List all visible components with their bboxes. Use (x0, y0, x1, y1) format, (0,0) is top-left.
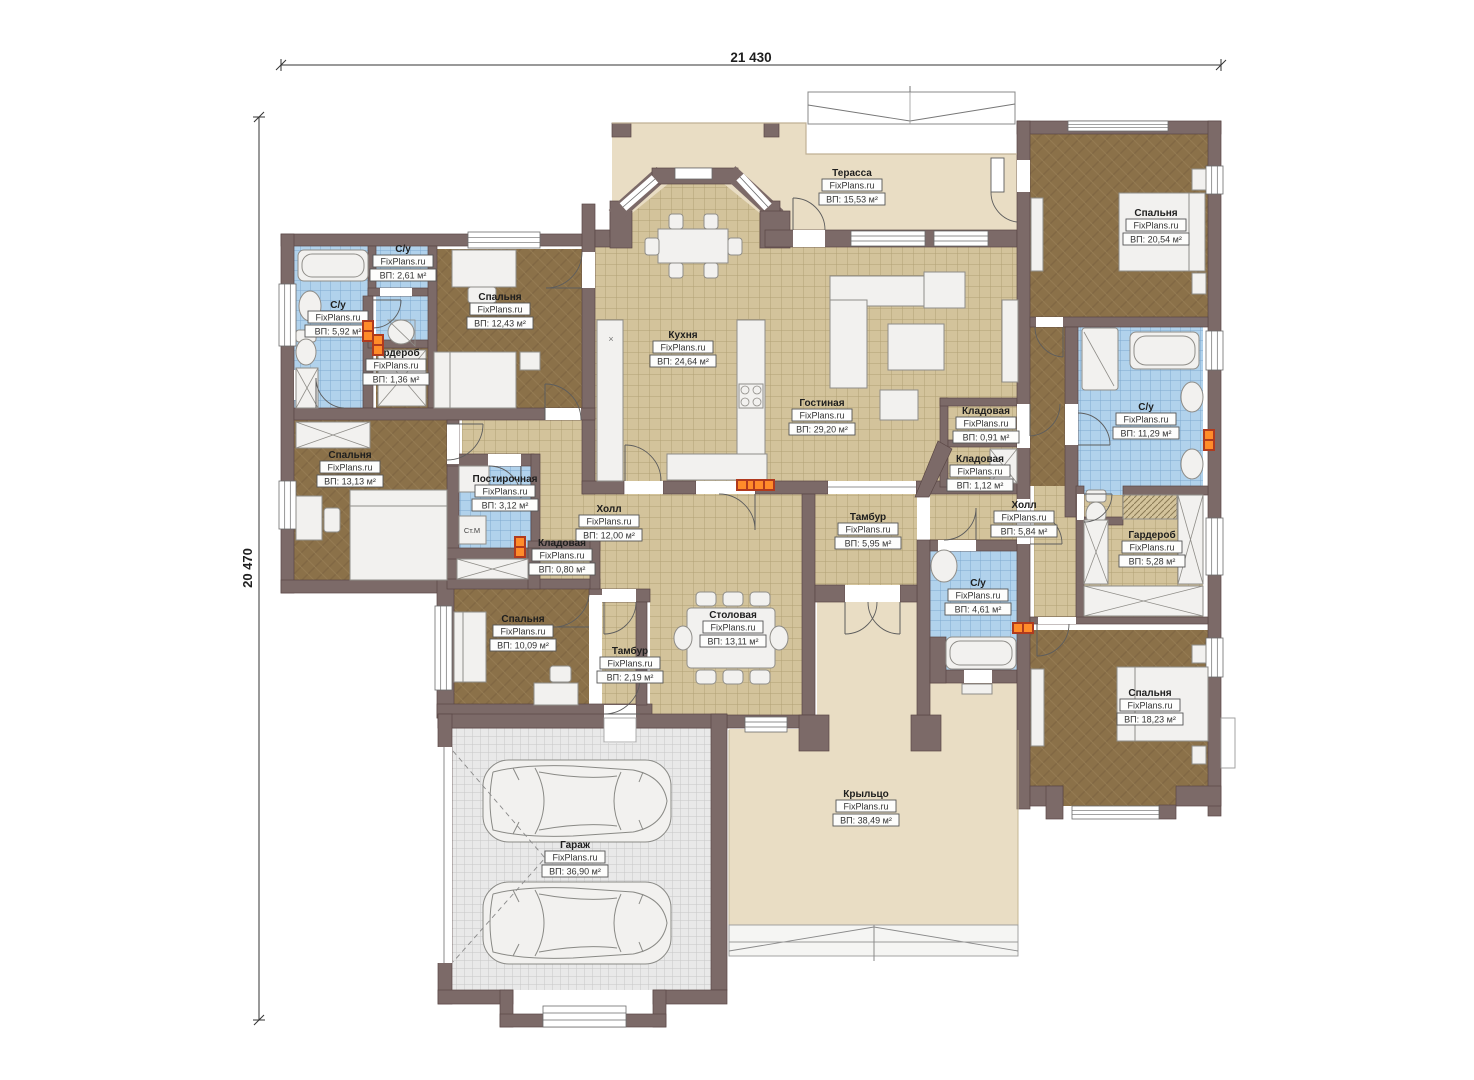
svg-text:ВП: 2,19 м²: ВП: 2,19 м² (607, 673, 654, 683)
svg-text:FixPlans.ru: FixPlans.ru (829, 181, 874, 191)
svg-text:FixPlans.ru: FixPlans.ru (607, 659, 652, 669)
svg-text:21 430: 21 430 (730, 50, 771, 65)
svg-text:Кладовая: Кладовая (962, 406, 1010, 417)
svg-text:Терасса: Терасса (832, 168, 872, 179)
svg-text:ВП: 36,90 м²: ВП: 36,90 м² (549, 867, 601, 877)
svg-text:FixPlans.ru: FixPlans.ru (373, 361, 418, 371)
svg-text:Спальня: Спальня (478, 292, 521, 303)
svg-text:Тамбур: Тамбур (850, 511, 886, 523)
svg-text:ВП: 5,95 м²: ВП: 5,95 м² (845, 539, 892, 549)
svg-text:ВП: 1,12 м²: ВП: 1,12 м² (957, 481, 1004, 491)
svg-text:FixPlans.ru: FixPlans.ru (957, 467, 1002, 477)
svg-text:FixPlans.ru: FixPlans.ru (799, 411, 844, 421)
svg-text:ВП: 5,28 м²: ВП: 5,28 м² (1129, 557, 1176, 567)
svg-text:Гараж: Гараж (560, 840, 591, 851)
svg-text:ВП: 29,20 м²: ВП: 29,20 м² (796, 425, 848, 435)
svg-text:ВП: 12,00 м²: ВП: 12,00 м² (583, 531, 635, 541)
svg-text:FixPlans.ru: FixPlans.ru (1123, 415, 1168, 425)
svg-text:FixPlans.ru: FixPlans.ru (1129, 543, 1174, 553)
svg-text:ВП: 0,80 м²: ВП: 0,80 м² (539, 565, 586, 575)
svg-text:Столовая: Столовая (709, 610, 757, 621)
svg-text:Спальня: Спальня (1134, 208, 1177, 219)
svg-text:FixPlans.ru: FixPlans.ru (315, 313, 360, 323)
svg-text:ВП: 20,54 м²: ВП: 20,54 м² (1130, 235, 1182, 245)
svg-text:20 470: 20 470 (240, 548, 255, 588)
svg-text:Холл: Холл (596, 504, 621, 515)
svg-text:FixPlans.ru: FixPlans.ru (327, 463, 372, 473)
svg-text:Кладовая: Кладовая (956, 454, 1004, 465)
svg-text:ВП: 3,12 м²: ВП: 3,12 м² (482, 501, 529, 511)
svg-text:FixPlans.ru: FixPlans.ru (586, 517, 631, 527)
svg-text:С/у: С/у (395, 244, 411, 255)
svg-text:С/у: С/у (330, 300, 346, 311)
svg-text:Ст.М: Ст.М (464, 526, 480, 535)
svg-text:Кладовая: Кладовая (538, 538, 586, 549)
svg-text:FixPlans.ru: FixPlans.ru (482, 487, 527, 497)
svg-text:FixPlans.ru: FixPlans.ru (1133, 221, 1178, 231)
svg-text:FixPlans.ru: FixPlans.ru (963, 419, 1008, 429)
svg-text:Гардероб: Гардероб (1128, 529, 1175, 541)
svg-text:Спальня: Спальня (1128, 688, 1171, 699)
svg-text:FixPlans.ru: FixPlans.ru (845, 525, 890, 535)
svg-text:Холл: Холл (1011, 500, 1036, 511)
svg-text:ВП: 5,92 м²: ВП: 5,92 м² (315, 327, 362, 337)
svg-text:ВП: 18,23 м²: ВП: 18,23 м² (1124, 715, 1176, 725)
svg-text:FixPlans.ru: FixPlans.ru (380, 257, 425, 267)
svg-text:ВП: 11,29 м²: ВП: 11,29 м² (1120, 429, 1171, 439)
svg-text:ВП: 0,91 м²: ВП: 0,91 м² (963, 433, 1010, 443)
svg-text:FixPlans.ru: FixPlans.ru (1001, 513, 1046, 523)
svg-text:Тамбур: Тамбур (612, 645, 648, 657)
svg-text:×: × (608, 334, 613, 344)
svg-text:ВП: 38,49 м²: ВП: 38,49 м² (840, 816, 892, 826)
svg-text:ВП: 10,09 м²: ВП: 10,09 м² (497, 641, 549, 651)
svg-text:FixPlans.ru: FixPlans.ru (955, 591, 1000, 601)
svg-text:FixPlans.ru: FixPlans.ru (477, 305, 522, 315)
svg-text:Спальня: Спальня (501, 614, 544, 625)
svg-text:ВП: 13,11 м²: ВП: 13,11 м² (707, 637, 758, 647)
svg-text:ВП: 1,36 м²: ВП: 1,36 м² (373, 375, 420, 385)
svg-text:ВП: 12,43 м²: ВП: 12,43 м² (474, 319, 526, 329)
svg-text:Кухня: Кухня (668, 330, 697, 341)
svg-text:ВП: 24,64 м²: ВП: 24,64 м² (657, 357, 709, 367)
svg-text:FixPlans.ru: FixPlans.ru (710, 623, 755, 633)
svg-text:FixPlans.ru: FixPlans.ru (843, 802, 888, 812)
svg-text:FixPlans.ru: FixPlans.ru (660, 343, 705, 353)
svg-text:Крыльцо: Крыльцо (843, 789, 889, 800)
svg-text:FixPlans.ru: FixPlans.ru (552, 853, 597, 863)
svg-text:ВП: 4,61 м²: ВП: 4,61 м² (955, 605, 1002, 615)
svg-text:С/у: С/у (1138, 402, 1154, 413)
svg-text:FixPlans.ru: FixPlans.ru (1127, 701, 1172, 711)
svg-text:Постирочная: Постирочная (473, 474, 538, 485)
svg-text:FixPlans.ru: FixPlans.ru (500, 627, 545, 637)
svg-text:ВП: 15,53 м²: ВП: 15,53 м² (826, 195, 878, 205)
svg-text:Гостиная: Гостиная (799, 398, 844, 409)
svg-text:FixPlans.ru: FixPlans.ru (539, 551, 584, 561)
svg-text:Спальня: Спальня (328, 450, 371, 461)
svg-text:ВП: 2,61 м²: ВП: 2,61 м² (380, 271, 427, 281)
svg-text:ВП: 5,84 м²: ВП: 5,84 м² (1001, 527, 1048, 537)
svg-text:ВП: 13,13 м²: ВП: 13,13 м² (324, 477, 376, 487)
svg-text:С/у: С/у (970, 578, 986, 589)
